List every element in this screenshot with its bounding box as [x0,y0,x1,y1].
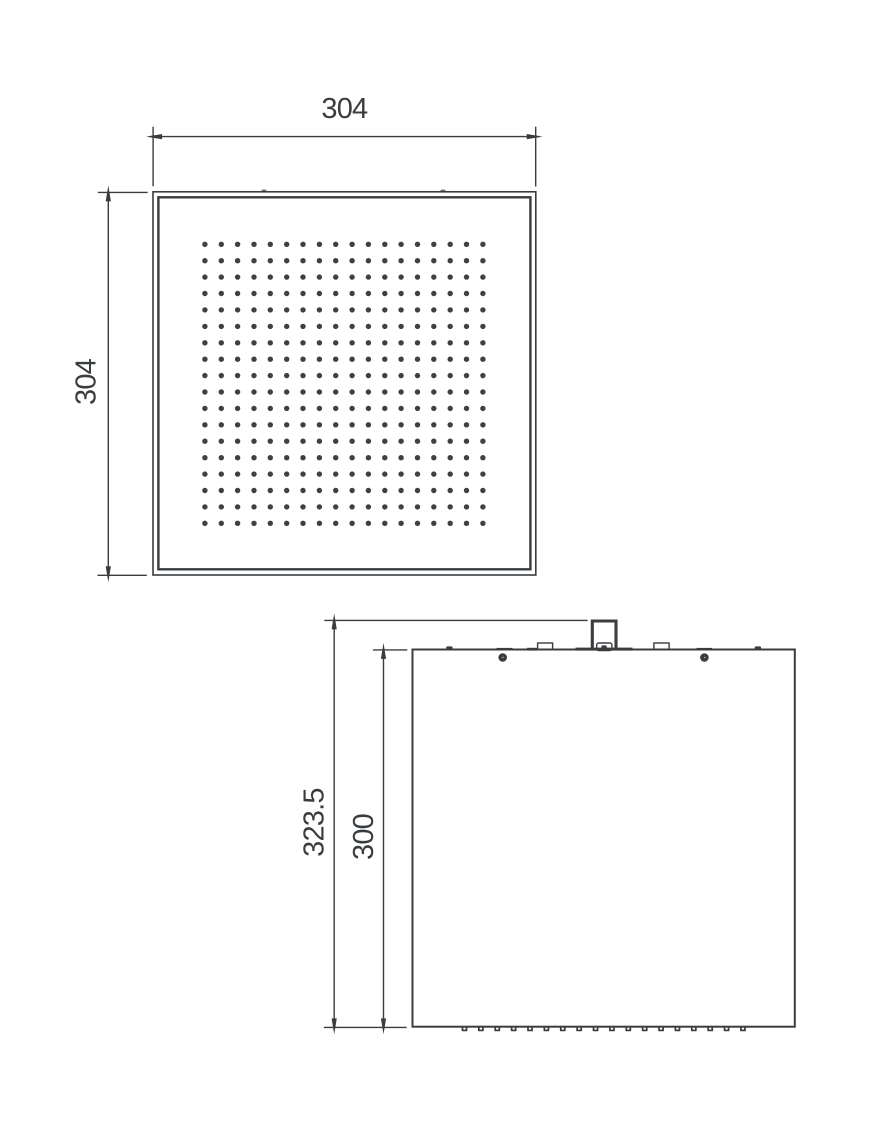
svg-text:304: 304 [70,358,102,405]
svg-text:323.5: 323.5 [298,788,330,857]
svg-text:300: 300 [348,814,380,860]
svg-text:304: 304 [321,93,368,125]
